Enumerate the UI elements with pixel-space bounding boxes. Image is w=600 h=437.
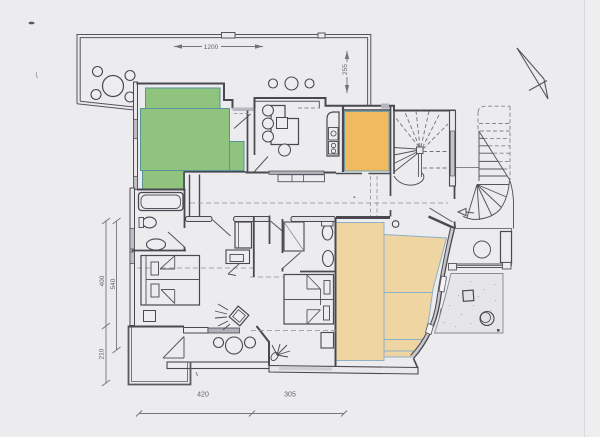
svg-text:210: 210 — [99, 348, 106, 359]
svg-text:400: 400 — [99, 275, 106, 286]
svg-text:305: 305 — [284, 392, 296, 399]
svg-text:1200: 1200 — [204, 44, 219, 51]
svg-text:540: 540 — [110, 278, 117, 289]
svg-text:420: 420 — [197, 392, 209, 399]
svg-text:255: 255 — [342, 64, 349, 75]
